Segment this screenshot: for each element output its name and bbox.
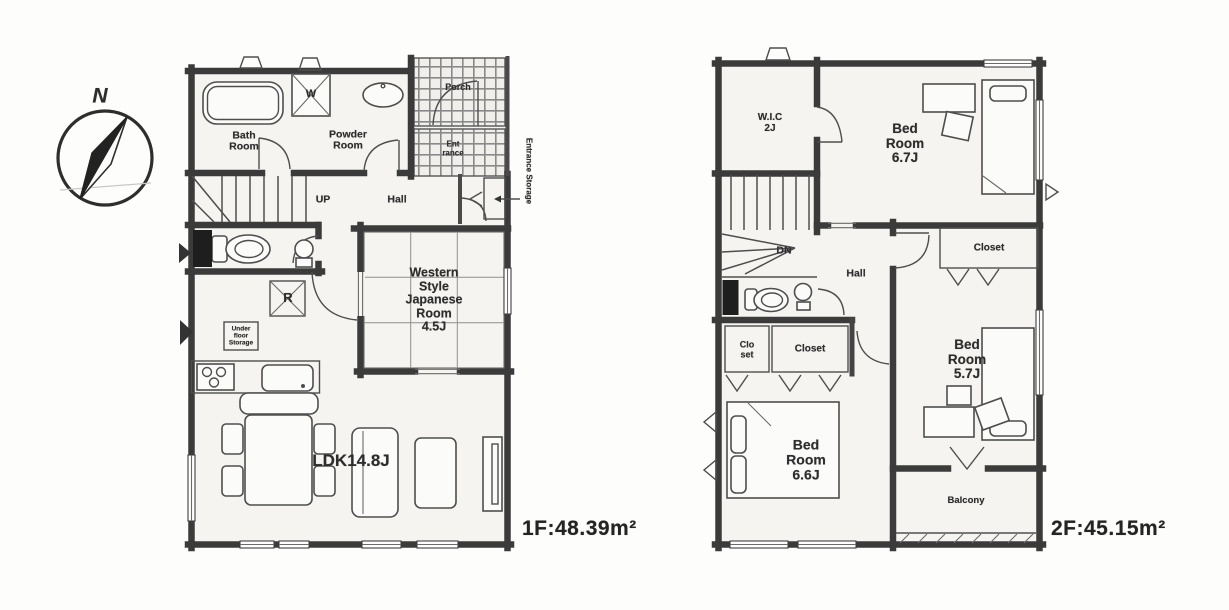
label-closet-small: Clo set <box>740 340 755 359</box>
tv-board-icon <box>483 437 502 511</box>
floorplan-page: N Bath Room Powder Room W Porch Ent ranc… <box>0 0 1229 610</box>
label-entrance-storage: Entrance Storage <box>524 138 533 204</box>
floor2-area-label: 2F:45.15m² <box>1051 517 1166 541</box>
kitchen-sink-icon <box>262 365 313 391</box>
label-bath-room: Bath Room <box>229 131 259 154</box>
label-ldk: LDK14.8J <box>312 452 389 470</box>
label-bedroom-57: Bed Room 5.7J <box>948 338 986 382</box>
chair-icon-67 <box>942 112 973 141</box>
compass-north-label: N <box>92 86 107 109</box>
powder-sink-icon <box>363 83 403 107</box>
bed-icon-67 <box>982 80 1034 194</box>
desk-icon-67 <box>923 84 975 112</box>
label-porch: Porch <box>445 83 471 93</box>
label-hall-2f: Hall <box>846 268 865 279</box>
floor1-area-label: 1F:48.39m² <box>522 517 637 541</box>
washbasin-icon-2f <box>795 284 812 301</box>
label-bedroom-66: Bed Room 6.6J <box>786 437 826 482</box>
compass-icon <box>58 111 152 205</box>
label-refrigerator: R <box>283 291 292 305</box>
porch-tiles <box>414 58 505 176</box>
label-up: UP <box>316 194 331 205</box>
kitchen-counter <box>240 393 318 414</box>
label-washer: W <box>306 89 316 101</box>
label-balcony: Balcony <box>948 496 985 506</box>
label-closet-mid: Closet <box>795 345 826 356</box>
sofa-icon <box>352 428 398 517</box>
label-underfloor-storage: Under floor Storage <box>229 325 253 346</box>
side-table-icon-57 <box>947 386 971 405</box>
desk-icon-57 <box>924 407 974 437</box>
label-closet-top: Closet <box>974 244 1005 255</box>
label-dn: DN <box>776 245 791 256</box>
label-western-room: Western Style Japanese Room 4.5J <box>406 266 463 334</box>
bathtub-icon <box>203 82 283 124</box>
label-bedroom-67: Bed Room 6.7J <box>886 122 924 166</box>
pipe-space-2f <box>723 280 739 315</box>
label-powder-room: Powder Room <box>329 130 367 153</box>
label-wic: W.I.C 2J <box>758 113 782 135</box>
label-hall-1f: Hall <box>387 194 406 205</box>
pipe-space-1f <box>193 230 212 267</box>
coffee-table-icon <box>415 438 456 508</box>
washbasin-icon-1f <box>295 240 313 258</box>
label-entrance: Ent rance <box>442 140 463 157</box>
